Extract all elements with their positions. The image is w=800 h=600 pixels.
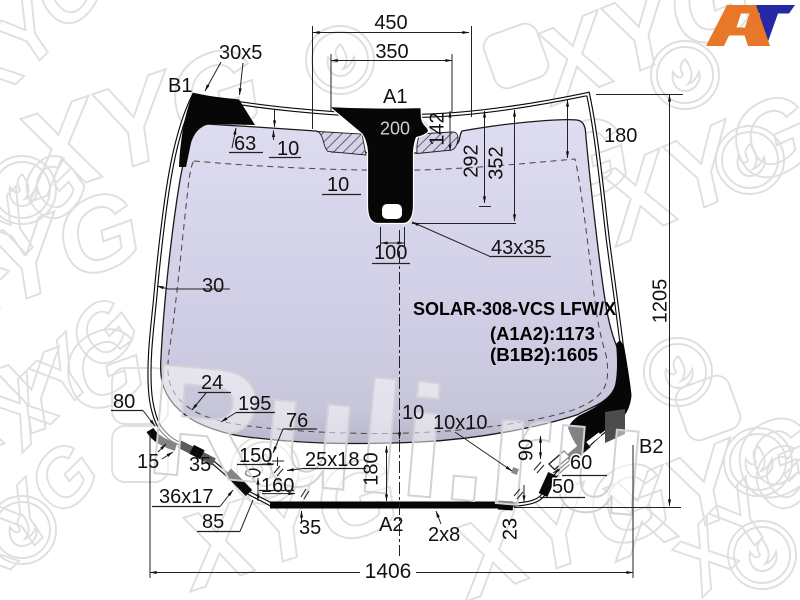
svg-text:10: 10 — [277, 138, 299, 160]
svg-text:10x10: 10x10 — [433, 412, 488, 434]
svg-text:36x17: 36x17 — [159, 486, 214, 508]
svg-text:200: 200 — [380, 119, 410, 139]
svg-text:B1: B1 — [168, 75, 192, 97]
svg-text:10: 10 — [402, 402, 424, 424]
svg-text:2x8: 2x8 — [428, 524, 460, 546]
svg-text:SOLAR-308-VCS LFW/X: SOLAR-308-VCS LFW/X — [413, 299, 616, 319]
svg-text:B2: B2 — [639, 436, 663, 458]
svg-text:35: 35 — [299, 517, 321, 539]
svg-text:24: 24 — [201, 372, 223, 394]
svg-text:350: 350 — [375, 41, 408, 63]
svg-text:(A1A2):1173: (A1A2):1173 — [490, 324, 595, 344]
svg-text:60: 60 — [570, 452, 592, 474]
svg-text:35: 35 — [189, 454, 211, 476]
svg-text:85: 85 — [202, 511, 224, 533]
svg-text:A1: A1 — [383, 86, 407, 108]
svg-text:1406: 1406 — [365, 560, 412, 583]
svg-text:(B1B2):1605: (B1B2):1605 — [490, 345, 598, 365]
svg-text:30x5: 30x5 — [219, 42, 262, 64]
svg-text:A2: A2 — [379, 514, 403, 536]
svg-text:63: 63 — [234, 133, 256, 155]
svg-text:43x35: 43x35 — [491, 237, 546, 259]
svg-text:292: 292 — [460, 144, 482, 177]
svg-text:352: 352 — [485, 146, 507, 179]
svg-text:180: 180 — [604, 125, 637, 147]
svg-text:195: 195 — [238, 393, 271, 415]
svg-text:450: 450 — [374, 12, 407, 34]
svg-text:10: 10 — [327, 174, 349, 196]
svg-text:142: 142 — [426, 112, 448, 145]
svg-text:180: 180 — [360, 452, 382, 485]
svg-text:30: 30 — [202, 275, 224, 297]
svg-text:80: 80 — [113, 391, 135, 413]
svg-text:1205: 1205 — [649, 279, 671, 324]
svg-text:50: 50 — [552, 476, 574, 498]
svg-text:100: 100 — [374, 242, 407, 264]
svg-text:25x18: 25x18 — [305, 449, 360, 471]
svg-text:15: 15 — [137, 451, 159, 473]
svg-text:90: 90 — [515, 439, 537, 461]
svg-text:23: 23 — [499, 518, 521, 540]
